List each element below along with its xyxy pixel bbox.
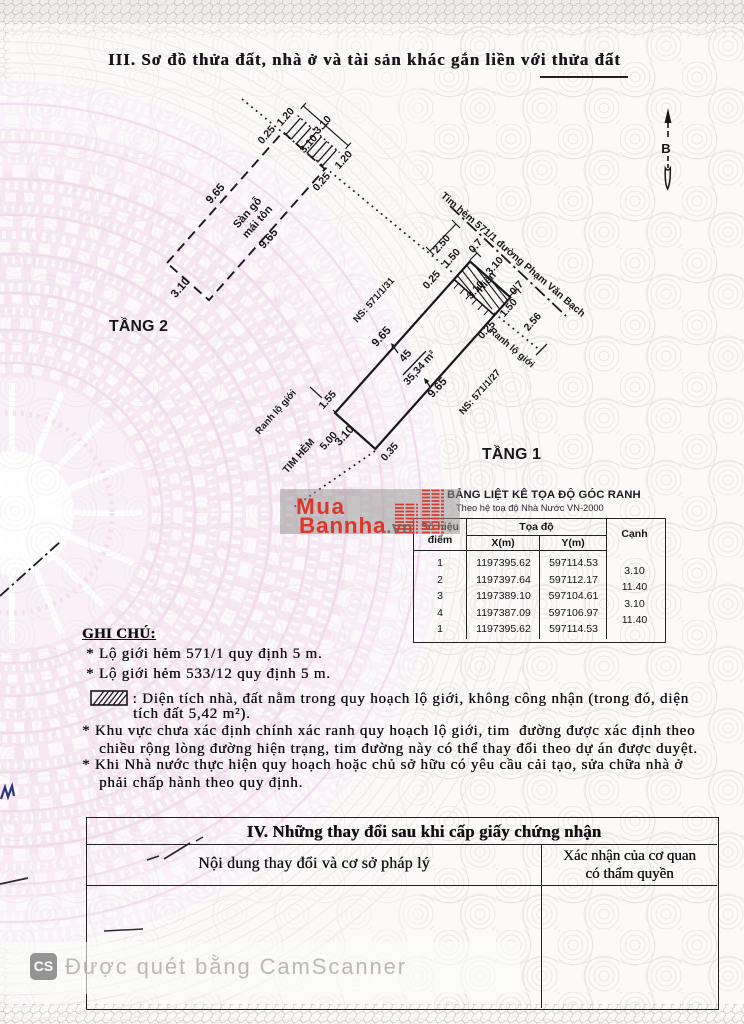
svg-text:TIM HẺM: TIM HẺM bbox=[279, 436, 317, 476]
svg-text:9.65: 9.65 bbox=[204, 181, 228, 206]
svg-text:TẦNG 2: TẦNG 2 bbox=[109, 316, 168, 335]
svg-text:0.35: 0.35 bbox=[378, 440, 401, 463]
svg-text:45: 45 bbox=[397, 347, 414, 364]
svg-text:0.25: 0.25 bbox=[420, 268, 443, 291]
svg-text:0.25: 0.25 bbox=[310, 170, 333, 193]
svg-text:NS: 571/1/27: NS: 571/1/27 bbox=[457, 368, 503, 418]
svg-text:3.10: 3.10 bbox=[169, 276, 193, 301]
svg-text:9.65: 9.65 bbox=[257, 226, 281, 251]
svg-text:1.55: 1.55 bbox=[316, 388, 339, 411]
svg-text:2.56: 2.56 bbox=[521, 310, 544, 333]
svg-text:5.00: 5.00 bbox=[317, 429, 340, 452]
svg-text:9.65: 9.65 bbox=[426, 375, 450, 400]
svg-text:B: B bbox=[661, 141, 670, 156]
svg-text:9.65: 9.65 bbox=[370, 324, 394, 349]
svg-text:TẦNG 1: TẦNG 1 bbox=[482, 444, 541, 463]
svg-text:0.7: 0.7 bbox=[507, 278, 526, 297]
svg-text:0.7: 0.7 bbox=[466, 236, 485, 255]
svg-text:1.20: 1.20 bbox=[332, 148, 355, 171]
svg-text:NS: 571/1/31: NS: 571/1/31 bbox=[351, 275, 397, 325]
svg-text:Ranh lộ giới: Ranh lộ giới bbox=[253, 388, 298, 437]
